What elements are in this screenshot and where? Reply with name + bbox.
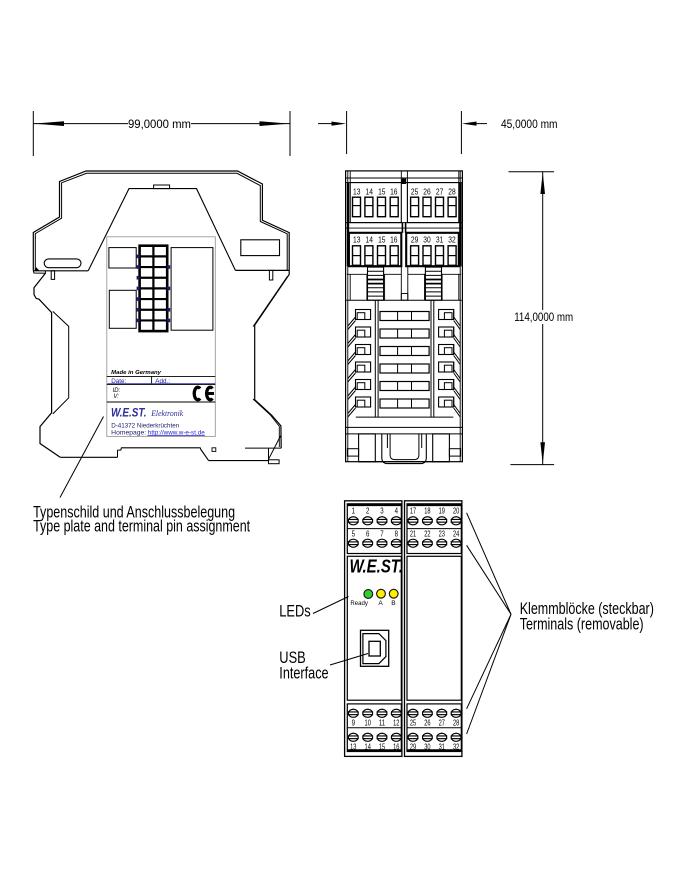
svg-text:16: 16	[390, 188, 398, 197]
svg-text:26: 26	[423, 188, 431, 197]
svg-text:30: 30	[423, 235, 431, 244]
svg-text:15: 15	[378, 188, 386, 197]
svg-text:W.E.ST.: W.E.ST.	[350, 557, 404, 577]
svg-text:99,0000 mm: 99,0000 mm	[128, 117, 191, 131]
svg-text:1: 1	[352, 506, 356, 516]
svg-text:Date:: Date:	[111, 378, 126, 385]
svg-text:Made in Germany: Made in Germany	[111, 370, 162, 376]
svg-text:Interface: Interface	[279, 665, 328, 683]
svg-text:17: 17	[410, 506, 416, 516]
svg-text:10: 10	[365, 718, 371, 728]
svg-text:20: 20	[453, 506, 459, 516]
svg-text:25: 25	[411, 188, 419, 197]
svg-text:9: 9	[352, 718, 356, 728]
svg-text:30: 30	[424, 741, 430, 751]
svg-text:114,0000 mm: 114,0000 mm	[514, 310, 573, 324]
svg-text:21: 21	[410, 528, 416, 538]
svg-text:22: 22	[424, 528, 430, 538]
svg-text:4: 4	[395, 506, 399, 516]
svg-text:Ready: Ready	[350, 600, 368, 607]
svg-text:3: 3	[380, 506, 384, 516]
svg-text:32: 32	[448, 235, 456, 244]
svg-text:A: A	[378, 600, 383, 607]
svg-text:2: 2	[366, 506, 370, 516]
svg-text:29: 29	[410, 741, 416, 751]
svg-text:27: 27	[439, 718, 445, 728]
svg-text:12: 12	[393, 718, 399, 728]
svg-text:28: 28	[448, 188, 456, 197]
svg-text:28: 28	[453, 718, 459, 728]
svg-text:8: 8	[395, 528, 399, 538]
svg-text:23: 23	[439, 528, 445, 538]
svg-text:27: 27	[436, 188, 444, 197]
svg-text:16: 16	[393, 741, 399, 751]
svg-text:13: 13	[353, 188, 361, 197]
svg-text:Elektronik: Elektronik	[150, 409, 183, 418]
svg-text:18: 18	[424, 506, 430, 516]
svg-text:6: 6	[366, 528, 370, 538]
svg-text:15: 15	[379, 741, 385, 751]
svg-text:13: 13	[350, 741, 356, 751]
svg-text:29: 29	[411, 235, 419, 244]
svg-text:7: 7	[380, 528, 384, 538]
svg-text:13: 13	[353, 235, 361, 244]
svg-text:32: 32	[453, 741, 459, 751]
svg-text:14: 14	[366, 235, 374, 244]
svg-text:26: 26	[424, 718, 430, 728]
svg-text:B: B	[391, 600, 396, 607]
svg-text:19: 19	[439, 506, 445, 516]
svg-text:W.E.ST.: W.E.ST.	[111, 405, 147, 419]
svg-text:LEDs: LEDs	[279, 602, 310, 620]
svg-text:11: 11	[379, 718, 385, 728]
svg-text:Homepage:: Homepage:	[111, 429, 146, 436]
svg-text:14: 14	[366, 188, 374, 197]
svg-text:15: 15	[378, 235, 386, 244]
svg-text:V:: V:	[113, 394, 119, 400]
svg-text:25: 25	[410, 718, 416, 728]
svg-text:24: 24	[453, 528, 459, 538]
svg-text:31: 31	[436, 235, 444, 244]
svg-text:Add.:: Add.:	[155, 378, 170, 385]
svg-text:16: 16	[390, 235, 398, 244]
svg-text:14: 14	[365, 741, 371, 751]
svg-text:45,0000 mm: 45,0000 mm	[501, 117, 558, 131]
svg-text:31: 31	[439, 741, 445, 751]
svg-text:Type plate and terminal pin as: Type plate and terminal pin assignment	[33, 517, 250, 535]
svg-text:5: 5	[352, 528, 356, 538]
svg-text:Terminals (removable): Terminals (removable)	[520, 615, 644, 633]
